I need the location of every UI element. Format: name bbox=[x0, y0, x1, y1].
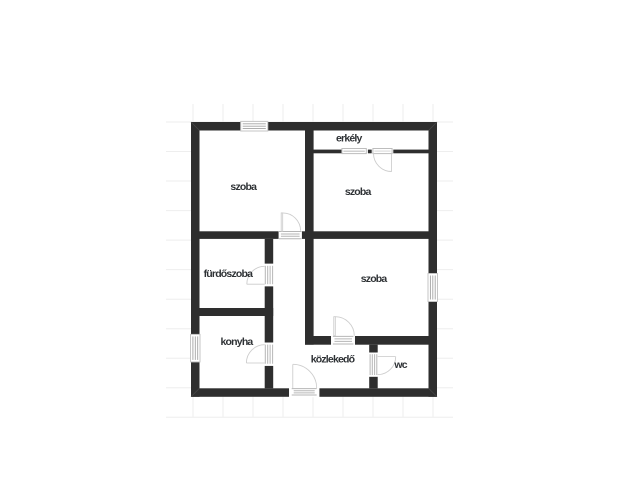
svg-text:fürdőszoba: fürdőszoba bbox=[204, 268, 254, 280]
svg-text:közlekedő: közlekedő bbox=[311, 354, 355, 366]
svg-text:erkély: erkély bbox=[336, 132, 363, 144]
svg-text:szoba: szoba bbox=[230, 181, 257, 193]
svg-text:szoba: szoba bbox=[345, 186, 372, 198]
svg-text:szoba: szoba bbox=[361, 273, 388, 285]
svg-text:wc: wc bbox=[393, 359, 407, 371]
svg-text:konyha: konyha bbox=[221, 336, 254, 348]
